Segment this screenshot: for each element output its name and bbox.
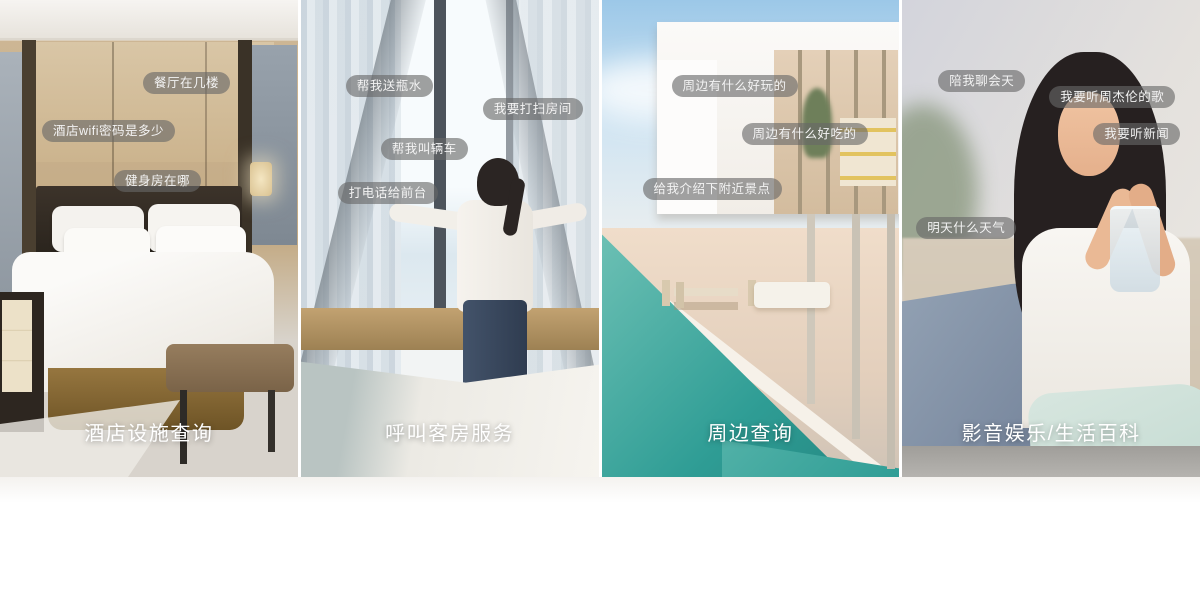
query-bubble: 明天什么天气 — [916, 217, 1016, 239]
query-bubble: 我要听周杰伦的歌 — [1049, 86, 1175, 108]
panel-caption: 酒店设施查询 — [0, 417, 298, 446]
panel-entertainment: 陪我聊会天 我要听周杰伦的歌 我要听新闻 明天什么天气 影音娱乐/生活百科 — [902, 0, 1200, 477]
query-bubble: 我要听新闻 — [1093, 123, 1180, 145]
query-bubble: 打电话给前台 — [338, 182, 438, 204]
query-bubble: 周边有什么好吃的 — [742, 123, 868, 145]
panel-room-service: 帮我送瓶水 我要打扫房间 帮我叫辆车 打电话给前台 呼叫客房服务 — [301, 0, 599, 477]
panel-caption: 呼叫客房服务 — [301, 417, 599, 446]
query-bubble: 我要打扫房间 — [483, 98, 583, 120]
hotel-bedroom-photo — [0, 0, 298, 477]
room-ai-butler-section: 餐厅在几楼 酒店wifi密码是多少 健身房在哪 酒店设施查询 帮我送瓶水 我要打… — [0, 0, 1200, 604]
query-bubble: 酒店wifi密码是多少 — [42, 120, 175, 142]
panel-nearby-queries: 周边有什么好玩的 周边有什么好吃的 给我介绍下附近景点 周边查询 — [602, 0, 900, 477]
query-bubble: 餐厅在几楼 — [143, 72, 230, 94]
feature-panels: 餐厅在几楼 酒店wifi密码是多少 健身房在哪 酒店设施查询 帮我送瓶水 我要打… — [0, 0, 1200, 477]
query-bubble: 陪我聊会天 — [938, 70, 1025, 92]
panel-caption: 影音娱乐/生活百科 — [902, 417, 1200, 446]
query-bubble: 帮我送瓶水 — [346, 75, 433, 97]
footer-section: 24H客房AI管家 一句呼唤，快速处理客需 — [0, 477, 1200, 604]
query-bubble: 周边有什么好玩的 — [672, 75, 798, 97]
query-bubble: 健身房在哪 — [114, 170, 201, 192]
query-bubble: 帮我叫辆车 — [381, 138, 468, 160]
seaside-villa-pool-photo — [602, 0, 900, 477]
query-bubble: 给我介绍下附近景点 — [643, 178, 782, 200]
panel-hotel-facilities: 餐厅在几楼 酒店wifi密码是多少 健身房在哪 酒店设施查询 — [0, 0, 298, 477]
guest-opening-curtains-photo — [301, 0, 599, 477]
panel-caption: 周边查询 — [602, 417, 900, 446]
